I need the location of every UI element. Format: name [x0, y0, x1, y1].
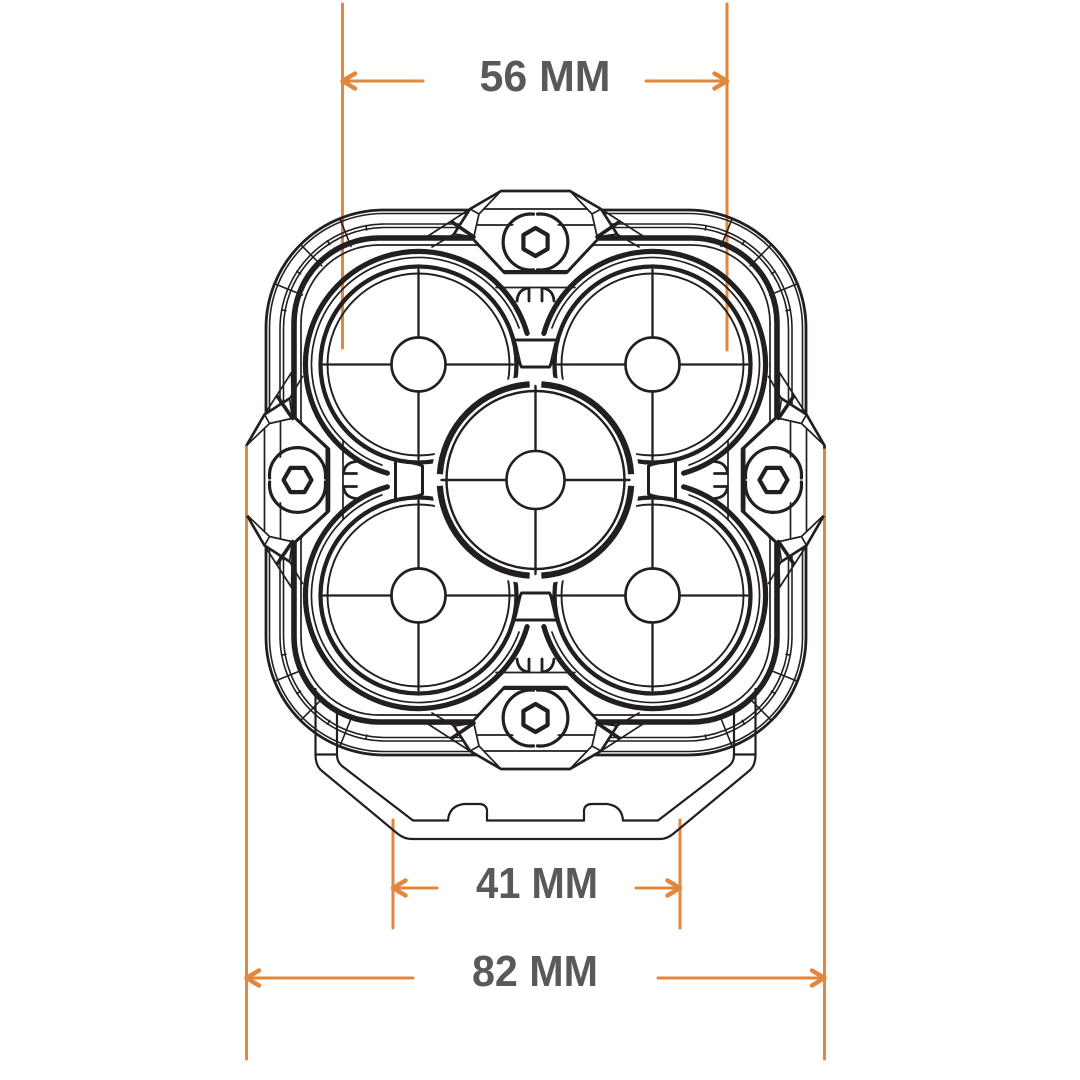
- svg-text:82 MM: 82 MM: [472, 947, 598, 996]
- svg-text:56 MM: 56 MM: [480, 52, 611, 101]
- svg-text:41 MM: 41 MM: [476, 859, 598, 908]
